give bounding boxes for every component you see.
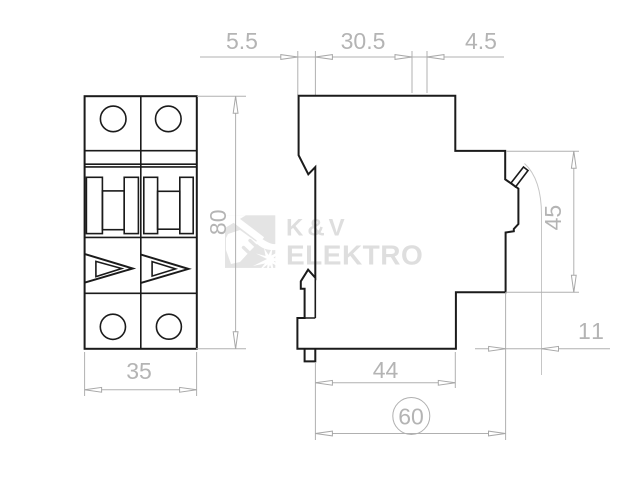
svg-text:45: 45 — [540, 205, 566, 231]
svg-text:ELEKTRO: ELEKTRO — [286, 240, 423, 271]
svg-text:11: 11 — [578, 318, 606, 344]
svg-text:35: 35 — [126, 358, 152, 384]
svg-text:44: 44 — [373, 357, 399, 383]
svg-text:K&V: K&V — [286, 215, 349, 242]
svg-text:30.5: 30.5 — [341, 28, 386, 54]
svg-text:5.5: 5.5 — [226, 28, 258, 54]
svg-text:4.5: 4.5 — [465, 28, 497, 54]
svg-text:80: 80 — [205, 210, 231, 236]
svg-text:60: 60 — [398, 404, 424, 430]
